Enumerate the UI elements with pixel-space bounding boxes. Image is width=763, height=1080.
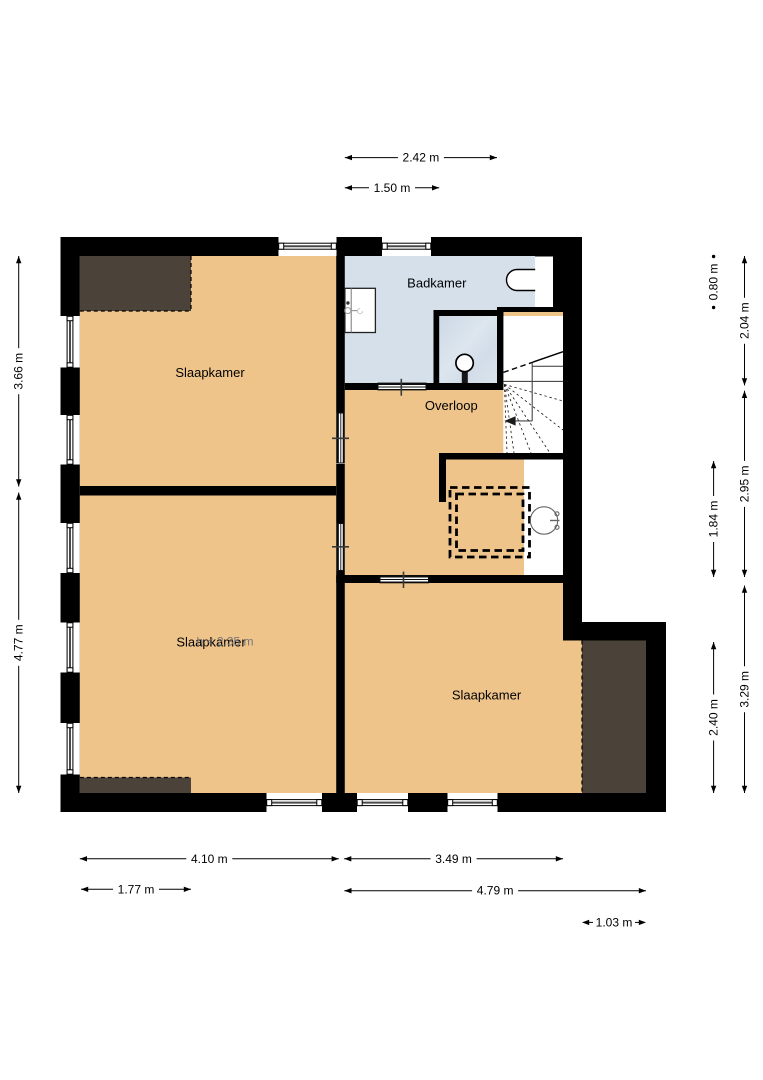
svg-text:Overloop: Overloop — [425, 398, 478, 413]
svg-text:Slaapkamer: Slaapkamer — [452, 688, 522, 703]
svg-text:h < 2.35 m: h < 2.35 m — [196, 635, 253, 649]
svg-text:1.03 m: 1.03 m — [596, 915, 633, 929]
svg-text:2.42 m: 2.42 m — [403, 151, 440, 165]
svg-text:Badkamer: Badkamer — [407, 276, 467, 291]
svg-text:2.40 m: 2.40 m — [707, 699, 721, 736]
svg-text:2.04 m: 2.04 m — [738, 302, 752, 339]
svg-text:4.79 m: 4.79 m — [477, 884, 514, 898]
svg-text:1.84 m: 1.84 m — [707, 501, 721, 538]
svg-text:3.66 m: 3.66 m — [12, 353, 26, 390]
svg-text:4.77 m: 4.77 m — [12, 624, 26, 661]
svg-text:2.95 m: 2.95 m — [738, 466, 752, 503]
svg-text:Slaapkamer: Slaapkamer — [175, 365, 245, 380]
svg-text:3.49 m: 3.49 m — [435, 852, 472, 866]
svg-text:1.50 m: 1.50 m — [374, 181, 411, 195]
svg-text:4.10 m: 4.10 m — [191, 852, 228, 866]
svg-text:0.80 m: 0.80 m — [707, 264, 721, 301]
svg-text:1.77 m: 1.77 m — [118, 882, 155, 896]
svg-text:3.29 m: 3.29 m — [738, 671, 752, 708]
